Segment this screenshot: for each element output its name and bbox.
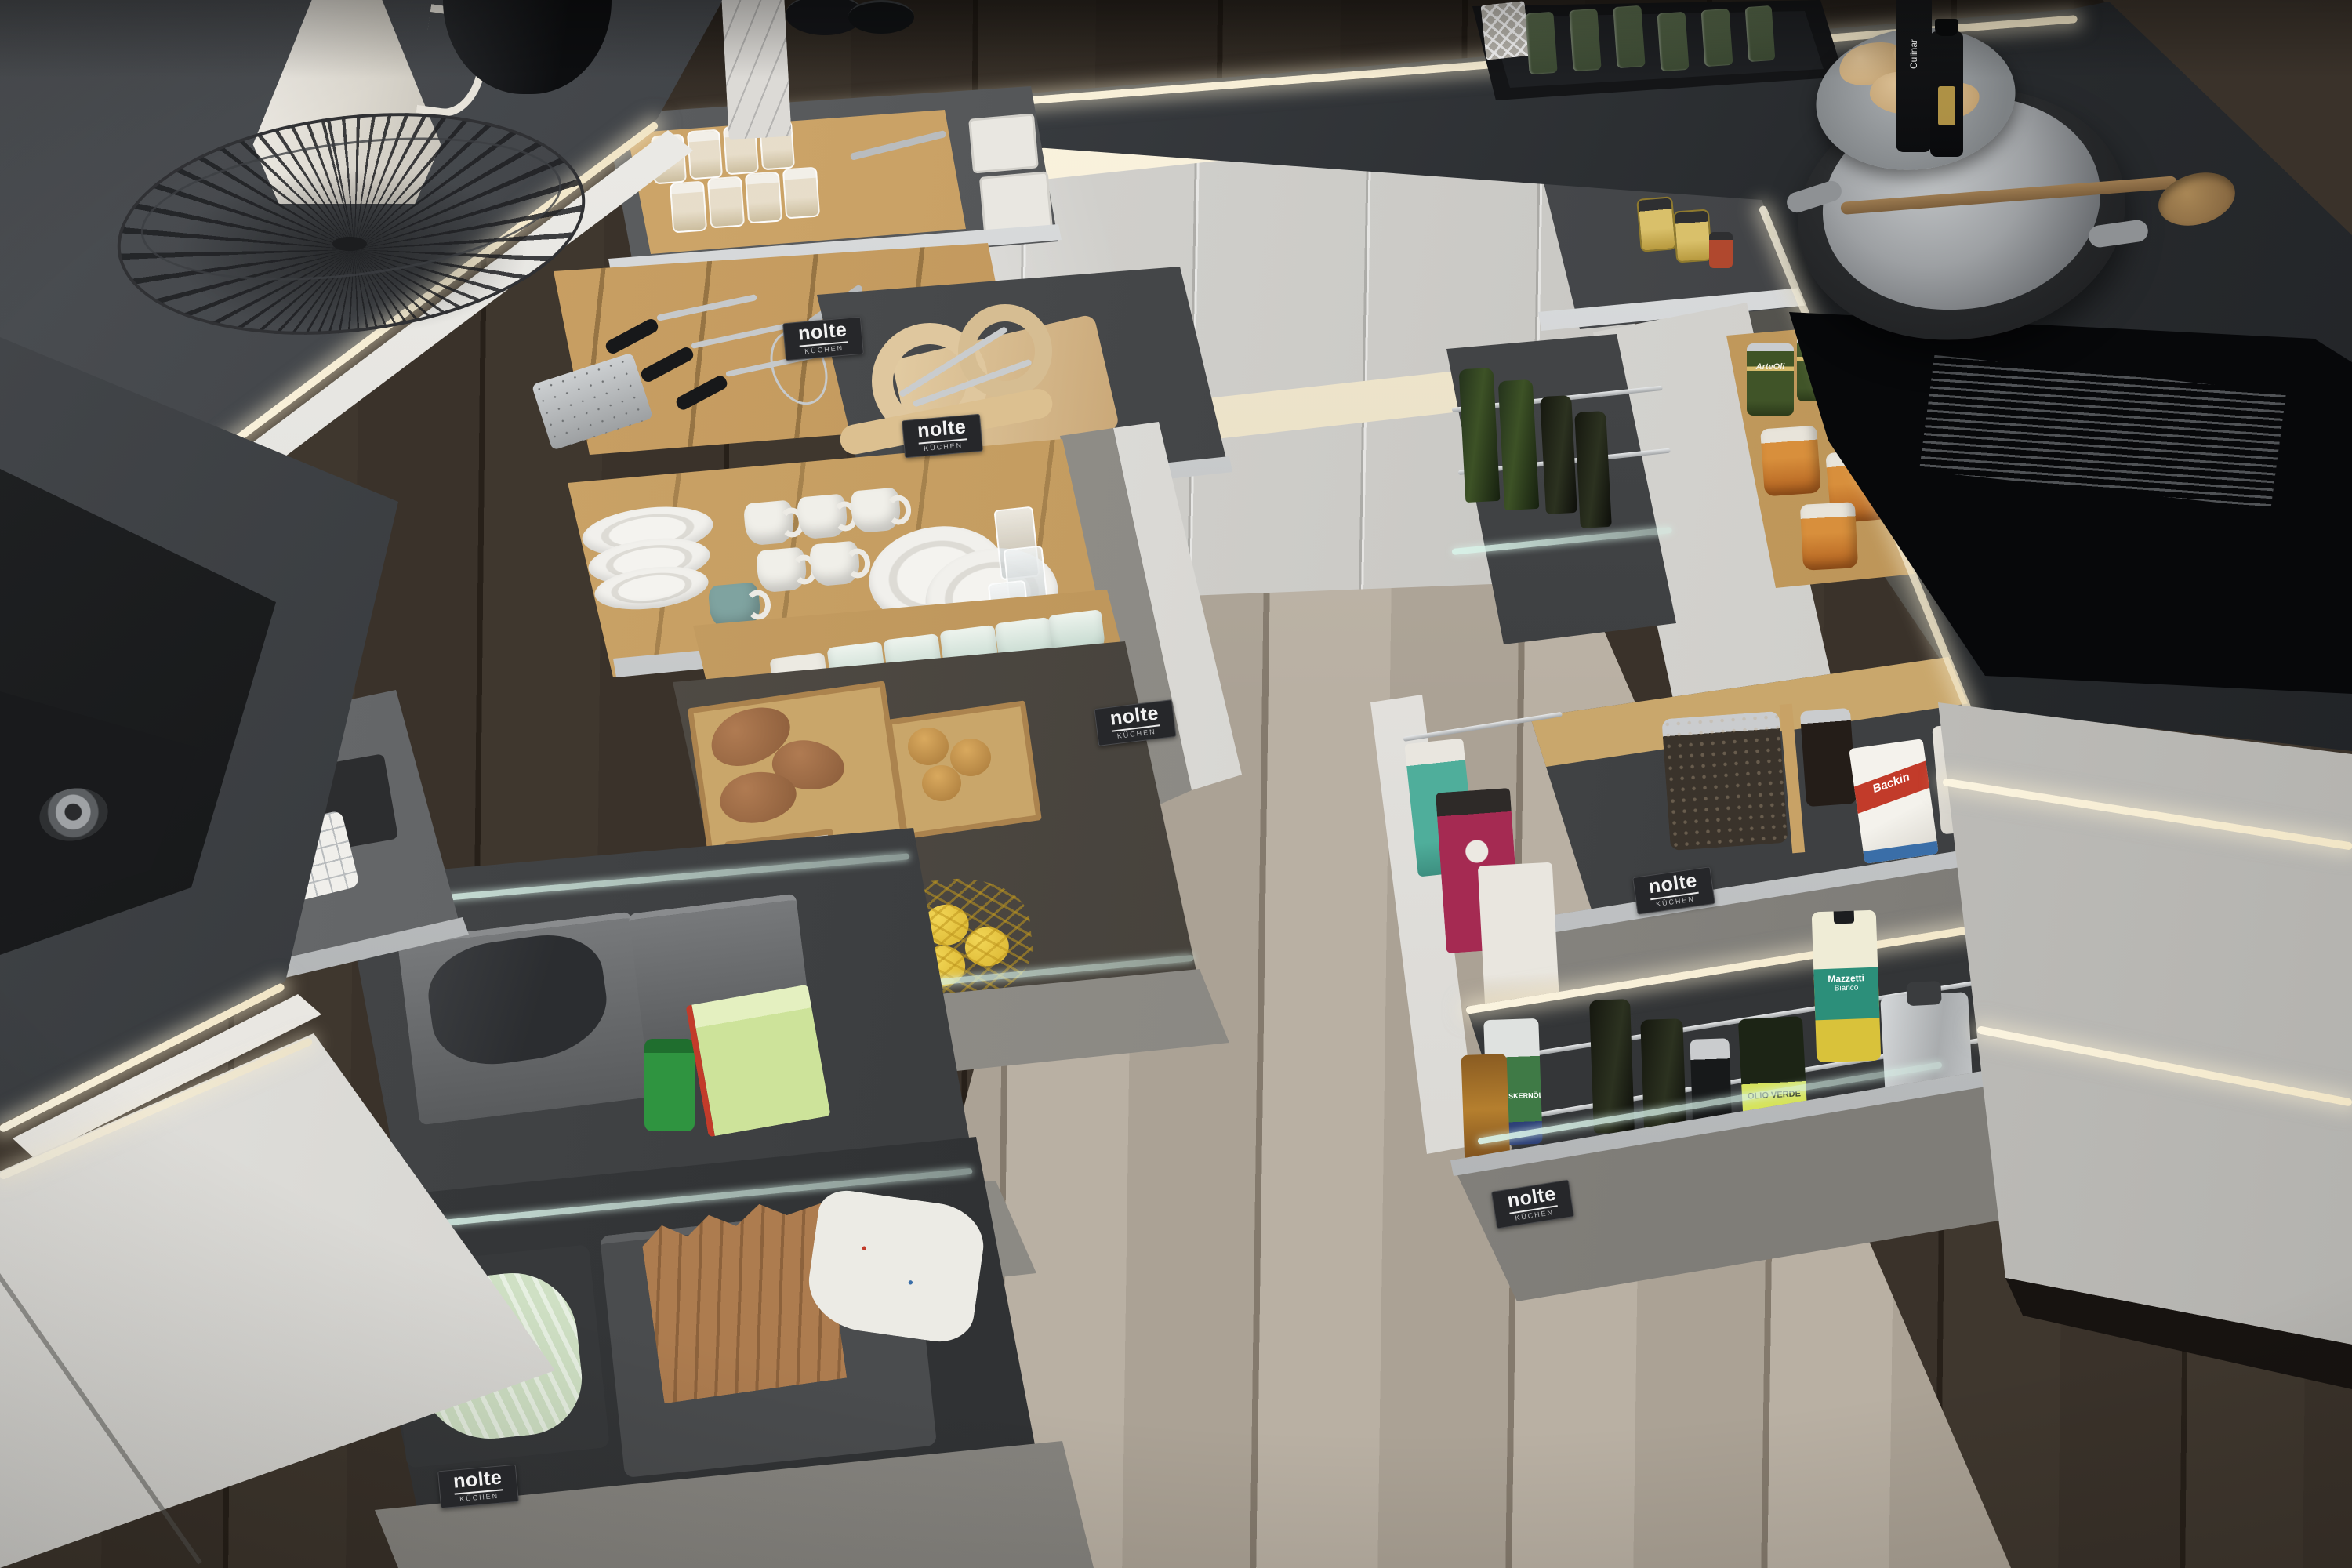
glass-storage-jar: [707, 176, 745, 229]
brand-subtitle: KÜCHEN: [459, 1491, 499, 1505]
vinegar-bottle-bianco: Mazzetti Bianco: [1812, 910, 1882, 1063]
olive-oil-bottle: [1498, 379, 1540, 510]
green-glass-bottle: [1569, 9, 1601, 71]
bottle-cap: [1935, 19, 1958, 36]
detergent-box: [685, 985, 830, 1138]
green-glass-bottle: [1745, 5, 1776, 62]
glass-storage-jar: [782, 167, 820, 220]
kitchen-photo: ArteOli ArteOli Backin KÜRBISKERNÖL OLIO…: [0, 0, 2352, 1568]
green-glass-bottle: [1525, 12, 1557, 74]
green-glass-bottle: [1657, 12, 1689, 71]
canister-knob: [1906, 981, 1942, 1006]
coffee-mug: [850, 487, 902, 533]
nolte-brand-badge: nolte KÜCHEN: [437, 1465, 519, 1509]
dark-preserve-jar: [1800, 708, 1857, 807]
onion: [908, 728, 949, 765]
basket-hub: [332, 237, 367, 251]
sauce-squeeze-bottle: Culinar: [1896, 0, 1932, 152]
sauce-bottle-label: Culinar: [1908, 39, 1919, 69]
brand-subtitle: KÜCHEN: [924, 441, 964, 455]
organizer-box: [968, 113, 1039, 173]
coffee-mug: [756, 546, 808, 593]
mustard-jar: [1673, 209, 1712, 263]
olive-can: ArteOli: [1747, 343, 1794, 416]
onion: [922, 765, 961, 801]
crochet-cloth: [1480, 1, 1530, 60]
preserve-jar: [1760, 426, 1821, 497]
coffee-mug: [797, 493, 848, 539]
glass-storage-jar: [670, 181, 707, 234]
coffee-mug: [809, 540, 861, 586]
green-glass-bottle: [1613, 5, 1645, 68]
coffee-mug: [743, 499, 795, 546]
wire-fruit-basket: [116, 116, 586, 332]
nolte-brand-badge: nolte KÜCHEN: [782, 317, 864, 361]
glass-storage-jar: [745, 172, 782, 224]
red-jam-jar: [1709, 232, 1733, 268]
dish-soap-bottle: [644, 1039, 695, 1131]
black-bowl: [848, 0, 914, 34]
vinegar-bottle: [1540, 395, 1577, 514]
olive-oil-bottle: [1459, 368, 1501, 503]
brand-subtitle: KÜCHEN: [804, 343, 844, 358]
marble-board: [721, 0, 791, 140]
baking-mix-packet: Backin: [1849, 739, 1939, 864]
mustard-jar: [1636, 196, 1677, 252]
gold-label: [1938, 86, 1955, 125]
nolte-brand-badge: nolte KÜCHEN: [902, 414, 983, 459]
bottle-cap: [1834, 910, 1855, 924]
olive-can-label: ArteOli: [1747, 362, 1794, 372]
soy-sauce-bottle: [1930, 31, 1963, 157]
amber-oil-bottle: [1461, 1054, 1511, 1165]
preserve-jar: [1800, 502, 1858, 571]
onion: [950, 739, 991, 776]
vinegar-variant-text: Bianco: [1814, 983, 1878, 994]
vinegar-label: Mazzetti Bianco: [1813, 967, 1879, 1021]
lentil-jar: [1661, 711, 1788, 851]
green-glass-bottle: [1701, 9, 1733, 67]
glass-storage-jar: [687, 129, 723, 180]
vinegar-bottle: [1574, 411, 1612, 528]
